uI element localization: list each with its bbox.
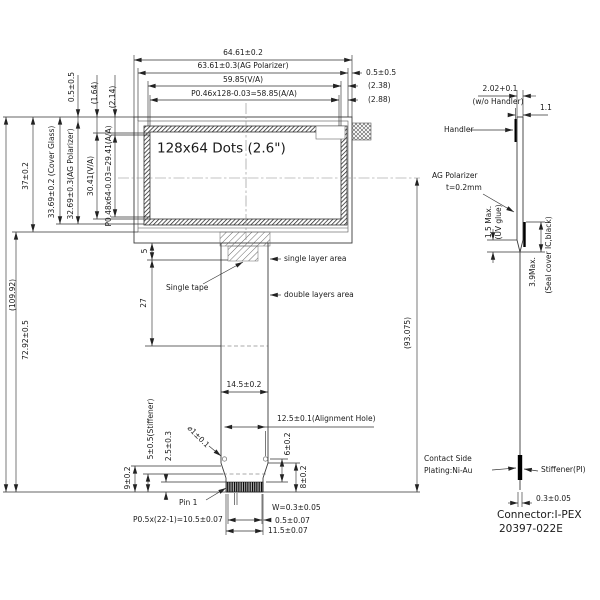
dim-total-height: (109.92) <box>9 279 17 311</box>
dim-fpc-width: 14.5±0.2 <box>227 381 262 389</box>
dim-right-offset-2: (2.38) <box>368 82 391 90</box>
dim-right-offset-1: 0.5±0.5 <box>366 69 396 77</box>
dim-module-height: 37±0.2 <box>22 162 30 190</box>
single-tape-label: Single tape <box>166 284 208 292</box>
seal-max-label: 3.9Max. <box>529 257 537 287</box>
dim-single-layer-len: 27 <box>140 298 148 308</box>
stiffener-pi-label: Stiffener(PI) <box>541 466 586 474</box>
dim-cover-glass-height: 33.69±0.2 (Cover Glass) <box>48 126 56 219</box>
connector-label: Connector:I-PEX <box>497 510 582 522</box>
dim-6: 6±0.2 <box>284 433 292 456</box>
dim-right-offset-3: (2.88) <box>368 96 391 104</box>
seal-cover-label: (Seal cover IC,black) <box>545 216 553 293</box>
display-area-label: 128x64 Dots (2.6") <box>157 142 286 157</box>
dim-va-height: 30.41(V/A) <box>87 156 95 196</box>
lcd-module-drawing: 64.61±0.2 63.61±0.3(AG Polarizer) 59.85(… <box>0 0 600 600</box>
uv-glue-label: (UV glue) <box>495 204 503 239</box>
dim-thickness: 2.02+0.1 <box>483 85 518 93</box>
dim-left-offset-2: (1.64) <box>91 82 99 105</box>
dim-pin-pitch: P0.5x(22-1)=10.5±0.07 <box>133 516 223 524</box>
dim-8: 8±0.2 <box>300 466 308 489</box>
dim-stiffener-height: 5±0.5(Stiffener) <box>147 399 155 460</box>
uv-max-label: 1.5 Max. <box>485 206 493 238</box>
dim-va-width: 59.85(V/A) <box>223 76 263 84</box>
handler-label: Handler <box>444 126 474 134</box>
pin1-label: Pin 1 <box>179 499 197 507</box>
single-layer-area-label: single layer area <box>284 255 347 263</box>
dim-tail-end-width: 11.5±0.07 <box>268 527 308 535</box>
dim-fpc-length: (93.075) <box>404 317 412 349</box>
dim-alignment-hole-pitch: 12.5±0.1(Alignment Hole) <box>277 415 376 423</box>
dim-tape-offset: 5 <box>141 249 149 254</box>
contact-side-label: Contact Side <box>424 455 472 463</box>
double-layers-area-label: double layers area <box>284 291 354 299</box>
dim-fpc-thickness: 0.3±0.05 <box>536 495 571 503</box>
dim-9: 9±0.2 <box>124 467 132 490</box>
ag-polarizer-label: AG Polarizer <box>432 172 478 180</box>
dim-handler-thickness: 1.1 <box>540 104 552 112</box>
side-view-dimensions <box>470 90 548 507</box>
dim-pin-width: W=0.3±0.05 <box>272 504 321 512</box>
dim-aa-height: P0.48x64-0.03=29.41(A/A) <box>105 125 113 226</box>
dim-edge-margin: 0.5±0.07 <box>275 517 310 525</box>
dim-thickness-note: (w/o Handler) <box>472 98 523 106</box>
ag-thickness-label: t=0.2mm <box>446 184 482 192</box>
dim-total-width: 64.61±0.2 <box>223 49 263 57</box>
dim-left-offset-1: 0.5±0.5 <box>68 72 76 102</box>
connector-pn-label: 20397-022E <box>499 524 563 536</box>
plating-label: Plating:Ni-Au <box>424 467 472 475</box>
dim-left-offset-3: (2.14) <box>109 86 117 109</box>
dim-ag-polarizer-height: 32.69±0.3(AG Polarizer) <box>67 128 75 219</box>
dim-ag-polarizer-width: 63.61±0.3(AG Polarizer) <box>197 62 288 70</box>
dim-tail-height: 72.92±0.5 <box>22 320 30 360</box>
side-view-structure <box>516 117 525 490</box>
dim-aa-width: P0.46x128-0.03=58.85(A/A) <box>191 90 297 98</box>
dim-contact-height: 2.5±0.3 <box>165 431 173 461</box>
